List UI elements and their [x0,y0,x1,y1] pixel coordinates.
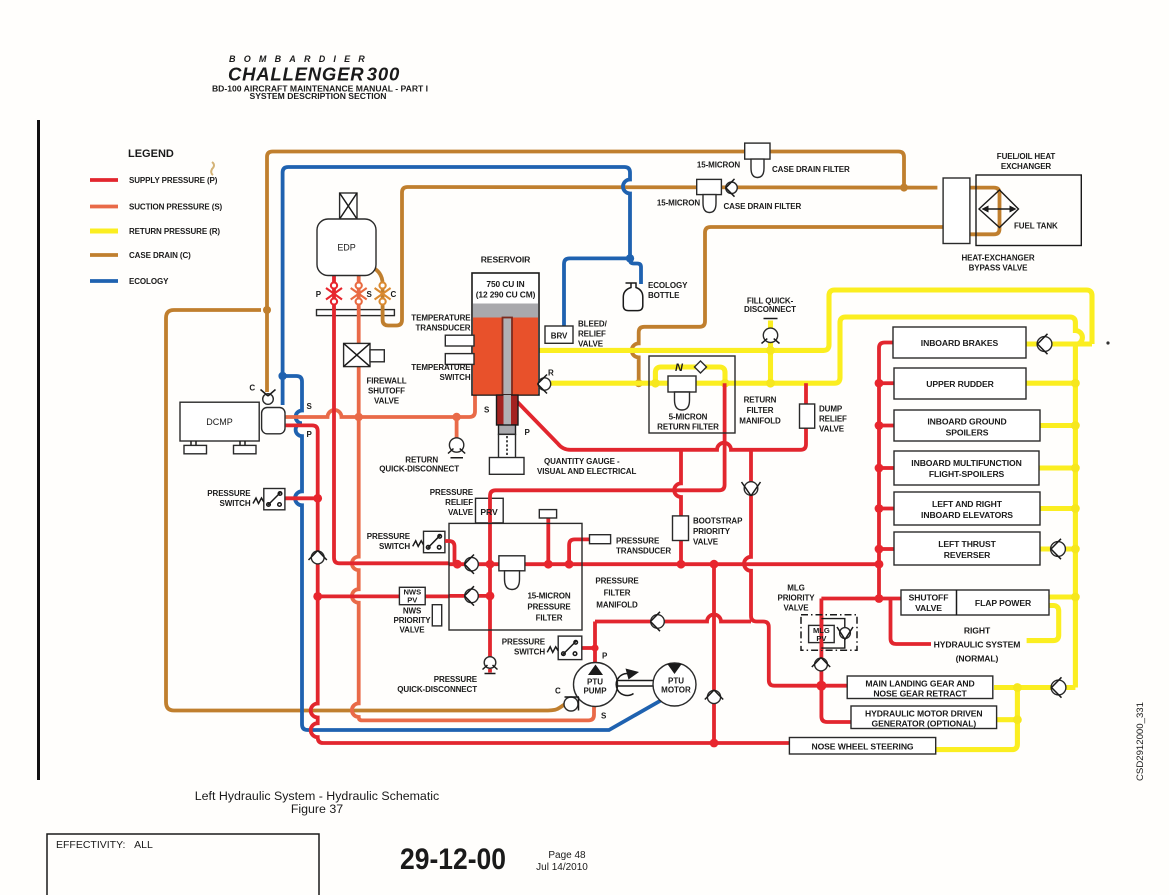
svg-text:RETURN PRESSURE (R): RETURN PRESSURE (R) [129,227,220,236]
svg-text:FLIGHT-SPOILERS: FLIGHT-SPOILERS [929,469,1005,479]
svg-text:VALVE: VALVE [915,603,942,613]
svg-text:Jul 14/2010: Jul 14/2010 [536,862,588,873]
svg-text:RIGHT: RIGHT [964,626,991,636]
svg-text:RELIEF: RELIEF [578,330,606,339]
svg-text:C: C [555,687,561,696]
svg-text:PRESSURE: PRESSURE [595,577,639,586]
svg-text:SHUTOFF: SHUTOFF [368,387,405,396]
svg-text:CASE DRAIN FILTER: CASE DRAIN FILTER [772,165,850,174]
svg-text:MOTOR: MOTOR [661,686,691,695]
svg-text:750 CU IN: 750 CU IN [486,279,524,289]
svg-text:S: S [484,406,490,415]
svg-text:HEAT-EXCHANGER: HEAT-EXCHANGER [961,254,1034,263]
svg-text:EDP: EDP [337,243,355,253]
svg-text:15-MICRON: 15-MICRON [657,199,700,208]
svg-text:QUANTITY GAUGE -: QUANTITY GAUGE - [544,457,620,466]
svg-text:BOTTLE: BOTTLE [648,291,680,300]
svg-text:CSD2912000_331: CSD2912000_331 [1135,702,1146,781]
svg-text:P: P [307,430,313,439]
svg-text:LEFT AND RIGHT: LEFT AND RIGHT [932,499,1003,509]
svg-text:P: P [316,290,322,299]
svg-text:RETURN FILTER: RETURN FILTER [657,423,719,432]
svg-text:BOMBARDIER: BOMBARDIER [229,54,373,64]
svg-text:15-MICRON: 15-MICRON [527,592,570,601]
svg-text:VALVE: VALVE [819,425,845,434]
svg-text:PRESSURE: PRESSURE [527,603,571,612]
svg-text:NWS: NWS [403,607,422,616]
svg-text:EFFECTIVITY: ALL: EFFECTIVITY: ALL [56,839,153,851]
svg-text:C: C [391,290,397,299]
svg-text:MANIFOLD: MANIFOLD [596,601,638,610]
svg-text:FUEL TANK: FUEL TANK [1014,222,1058,231]
svg-text:DCMP: DCMP [206,417,233,427]
svg-text:FIREWALL: FIREWALL [366,377,406,386]
svg-text:RELIEF: RELIEF [819,415,847,424]
svg-text:SUPPLY PRESSURE (P): SUPPLY PRESSURE (P) [129,176,218,185]
svg-text:SWITCH: SWITCH [514,648,545,657]
svg-text:FILTER: FILTER [747,406,774,415]
svg-text:INBOARD GROUND: INBOARD GROUND [927,417,1006,427]
svg-text:PV: PV [407,596,418,605]
svg-text:(NORMAL): (NORMAL) [956,654,999,664]
svg-text:PRESSURE: PRESSURE [434,675,478,684]
svg-text:INBOARD ELEVATORS: INBOARD ELEVATORS [921,510,1013,520]
svg-text:PRESSURE: PRESSURE [502,638,546,647]
svg-text:C: C [249,384,255,393]
svg-text:RELIEF: RELIEF [445,498,473,507]
svg-text:Figure 37: Figure 37 [291,802,343,816]
svg-text:MLG: MLG [787,584,804,593]
svg-text:TEMPERATURE: TEMPERATURE [411,314,471,323]
svg-text:CASE DRAIN FILTER: CASE DRAIN FILTER [724,202,802,211]
svg-text:VALVE: VALVE [693,538,719,547]
svg-text:HYDRAULIC SYSTEM: HYDRAULIC SYSTEM [934,640,1021,650]
svg-text:VALVE: VALVE [374,397,400,406]
svg-text:ECOLOGY: ECOLOGY [648,281,688,290]
svg-text:PRESSURE: PRESSURE [616,537,660,546]
svg-text:SWITCH: SWITCH [379,542,410,551]
svg-text:PRESSURE: PRESSURE [207,489,251,498]
svg-text:PRIORITY: PRIORITY [693,527,731,536]
svg-text:NOSE GEAR RETRACT: NOSE GEAR RETRACT [873,689,967,699]
svg-text:VALVE: VALVE [784,604,810,613]
svg-text:CASE DRAIN (C): CASE DRAIN (C) [129,251,191,260]
svg-text:VALVE: VALVE [578,340,604,349]
svg-text:BYPASS VALVE: BYPASS VALVE [969,264,1029,273]
svg-text:UPPER RUDDER: UPPER RUDDER [926,379,994,389]
svg-text:R: R [548,369,554,378]
svg-text:Left Hydraulic System - Hydrau: Left Hydraulic System - Hydraulic Schema… [195,789,439,803]
svg-text:5-MICRON: 5-MICRON [669,413,708,422]
svg-text:SWITCH: SWITCH [440,373,471,382]
svg-text:QUICK-DISCONNECT: QUICK-DISCONNECT [397,685,477,694]
svg-text:SHUTOFF: SHUTOFF [909,593,949,603]
svg-text:P: P [525,428,531,437]
svg-text:SYSTEM DESCRIPTION SECTION: SYSTEM DESCRIPTION SECTION [249,91,386,101]
svg-text:PRESSURE: PRESSURE [367,532,411,541]
svg-text:RESERVOIR: RESERVOIR [481,255,531,265]
svg-text:INBOARD BRAKES: INBOARD BRAKES [921,338,999,348]
svg-text:MAIN LANDING GEAR AND: MAIN LANDING GEAR AND [865,679,974,689]
svg-text:FLAP POWER: FLAP POWER [975,598,1032,608]
svg-text:SWITCH: SWITCH [220,499,251,508]
svg-text:INBOARD MULTIFUNCTION: INBOARD MULTIFUNCTION [911,458,1021,468]
svg-text:P: P [602,652,608,661]
svg-text:RETURN: RETURN [744,396,777,405]
svg-text:TRANSDUCER: TRANSDUCER [616,547,671,556]
svg-text:VISUAL AND ELECTRICAL: VISUAL AND ELECTRICAL [537,467,636,476]
svg-text:FILTER: FILTER [604,589,631,598]
svg-text:PV: PV [816,634,827,643]
svg-text:PUMP: PUMP [583,687,607,696]
svg-text:N: N [675,362,684,374]
svg-text:HYDRAULIC MOTOR DRIVEN: HYDRAULIC MOTOR DRIVEN [865,709,982,719]
svg-text:ECOLOGY: ECOLOGY [129,277,169,286]
svg-text:RETURN: RETURN [405,456,438,465]
svg-text:S: S [601,712,607,721]
svg-text:LEFT THRUST: LEFT THRUST [938,539,996,549]
svg-text:15-MICRON: 15-MICRON [697,161,740,170]
svg-text:SPOILERS: SPOILERS [946,428,989,438]
svg-text:PTU: PTU [587,678,603,687]
svg-text:TRANSDUCER: TRANSDUCER [415,324,470,333]
svg-text:Page 48: Page 48 [548,850,586,861]
svg-text:SUCTION PRESSURE (S): SUCTION PRESSURE (S) [129,203,223,212]
svg-text:REVERSER: REVERSER [944,550,991,560]
svg-text:DISCONNECT: DISCONNECT [744,305,796,314]
svg-text:NOSE WHEEL STEERING: NOSE WHEEL STEERING [811,742,913,752]
svg-text:CHALLENGER 300: CHALLENGER 300 [228,64,400,85]
svg-text:BLEED/: BLEED/ [578,320,608,329]
svg-text:QUICK-DISCONNECT: QUICK-DISCONNECT [379,465,459,474]
svg-text:FUEL/OIL HEAT: FUEL/OIL HEAT [997,152,1056,161]
svg-text:VALVE: VALVE [400,626,426,635]
svg-text:PTU: PTU [668,677,684,686]
svg-text:FILTER: FILTER [536,614,563,623]
svg-text:S: S [307,402,313,411]
svg-text:PRESSURE: PRESSURE [430,488,474,497]
svg-text:PRV: PRV [480,507,498,517]
svg-text:TEMPERATURE: TEMPERATURE [411,363,471,372]
svg-text:S: S [367,290,373,299]
svg-text:LEGEND: LEGEND [128,148,174,160]
svg-text:PRIORITY: PRIORITY [778,594,816,603]
svg-text:BOOTSTRAP: BOOTSTRAP [693,517,743,526]
svg-text:GENERATOR (OPTIONAL): GENERATOR (OPTIONAL) [871,719,976,729]
svg-text:29-12-00: 29-12-00 [400,843,506,876]
svg-text:DUMP: DUMP [819,405,843,414]
svg-text:PRIORITY: PRIORITY [394,616,432,625]
svg-text:EXCHANGER: EXCHANGER [1001,162,1052,171]
svg-text:(12 290 CU CM): (12 290 CU CM) [476,290,536,300]
svg-text:MANIFOLD: MANIFOLD [739,417,781,426]
svg-text:VALVE: VALVE [448,508,474,517]
svg-text:BRV: BRV [551,332,568,341]
